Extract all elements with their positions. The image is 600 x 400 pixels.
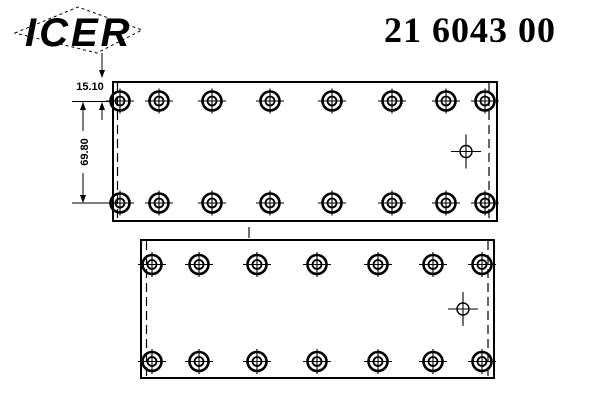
logo-text: ICER (25, 11, 133, 55)
dimension-label-thickness: 15.10 (76, 81, 104, 93)
technical-drawing: ICER 21 6043 00 15.10 69.80 (0, 0, 600, 400)
arrow-down-icon (80, 195, 86, 203)
drawing-sheet: ICER 21 6043 00 15.10 69.80 (0, 0, 600, 400)
upper-plate (106, 82, 499, 221)
arrow-up-icon (80, 102, 86, 110)
arrow-up-icon (99, 102, 105, 110)
upper-plate-outline (113, 82, 497, 221)
plates-layer (106, 82, 499, 378)
lower-plate (138, 240, 496, 378)
dimension-label-row-spacing: 69.80 (79, 138, 91, 166)
part-number: 21 6043 00 (384, 10, 556, 50)
brand-logo: ICER (15, 7, 142, 55)
arrow-down-icon (99, 70, 105, 78)
dimension-row-spacing: 69.80 (72, 102, 114, 204)
